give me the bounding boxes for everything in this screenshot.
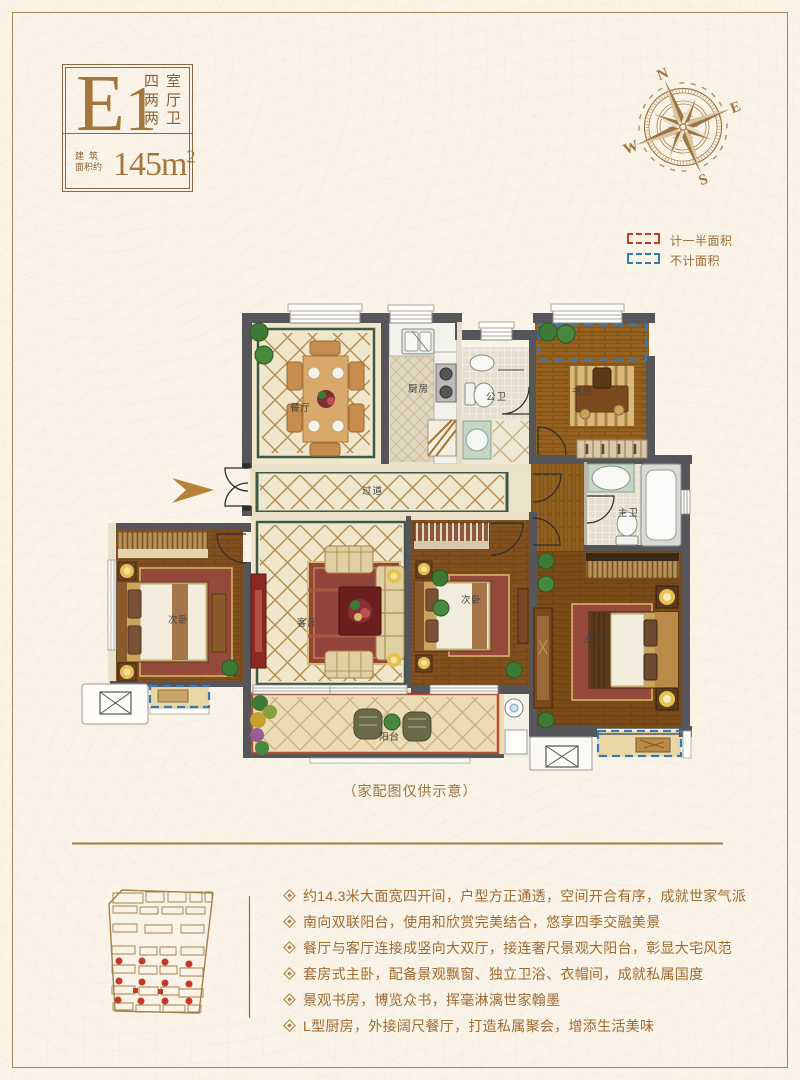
svg-text:书房: 书房 (572, 386, 593, 398)
svg-text:主卧: 主卧 (584, 633, 605, 645)
svg-text:主卫: 主卫 (618, 507, 639, 519)
svg-text:客厅: 客厅 (297, 617, 318, 629)
svg-text:次卧: 次卧 (168, 614, 189, 626)
svg-text:过道: 过道 (362, 485, 383, 497)
svg-text:阳台: 阳台 (379, 731, 400, 743)
svg-text:S: S (697, 171, 711, 189)
svg-text:厨房: 厨房 (408, 383, 429, 395)
svg-text:餐厅: 餐厅 (290, 402, 311, 414)
svg-text:次卧: 次卧 (461, 594, 482, 606)
svg-text:W: W (621, 138, 641, 158)
svg-text:N: N (655, 65, 671, 84)
svg-text:E: E (728, 99, 743, 118)
svg-text:公卫: 公卫 (486, 392, 507, 403)
